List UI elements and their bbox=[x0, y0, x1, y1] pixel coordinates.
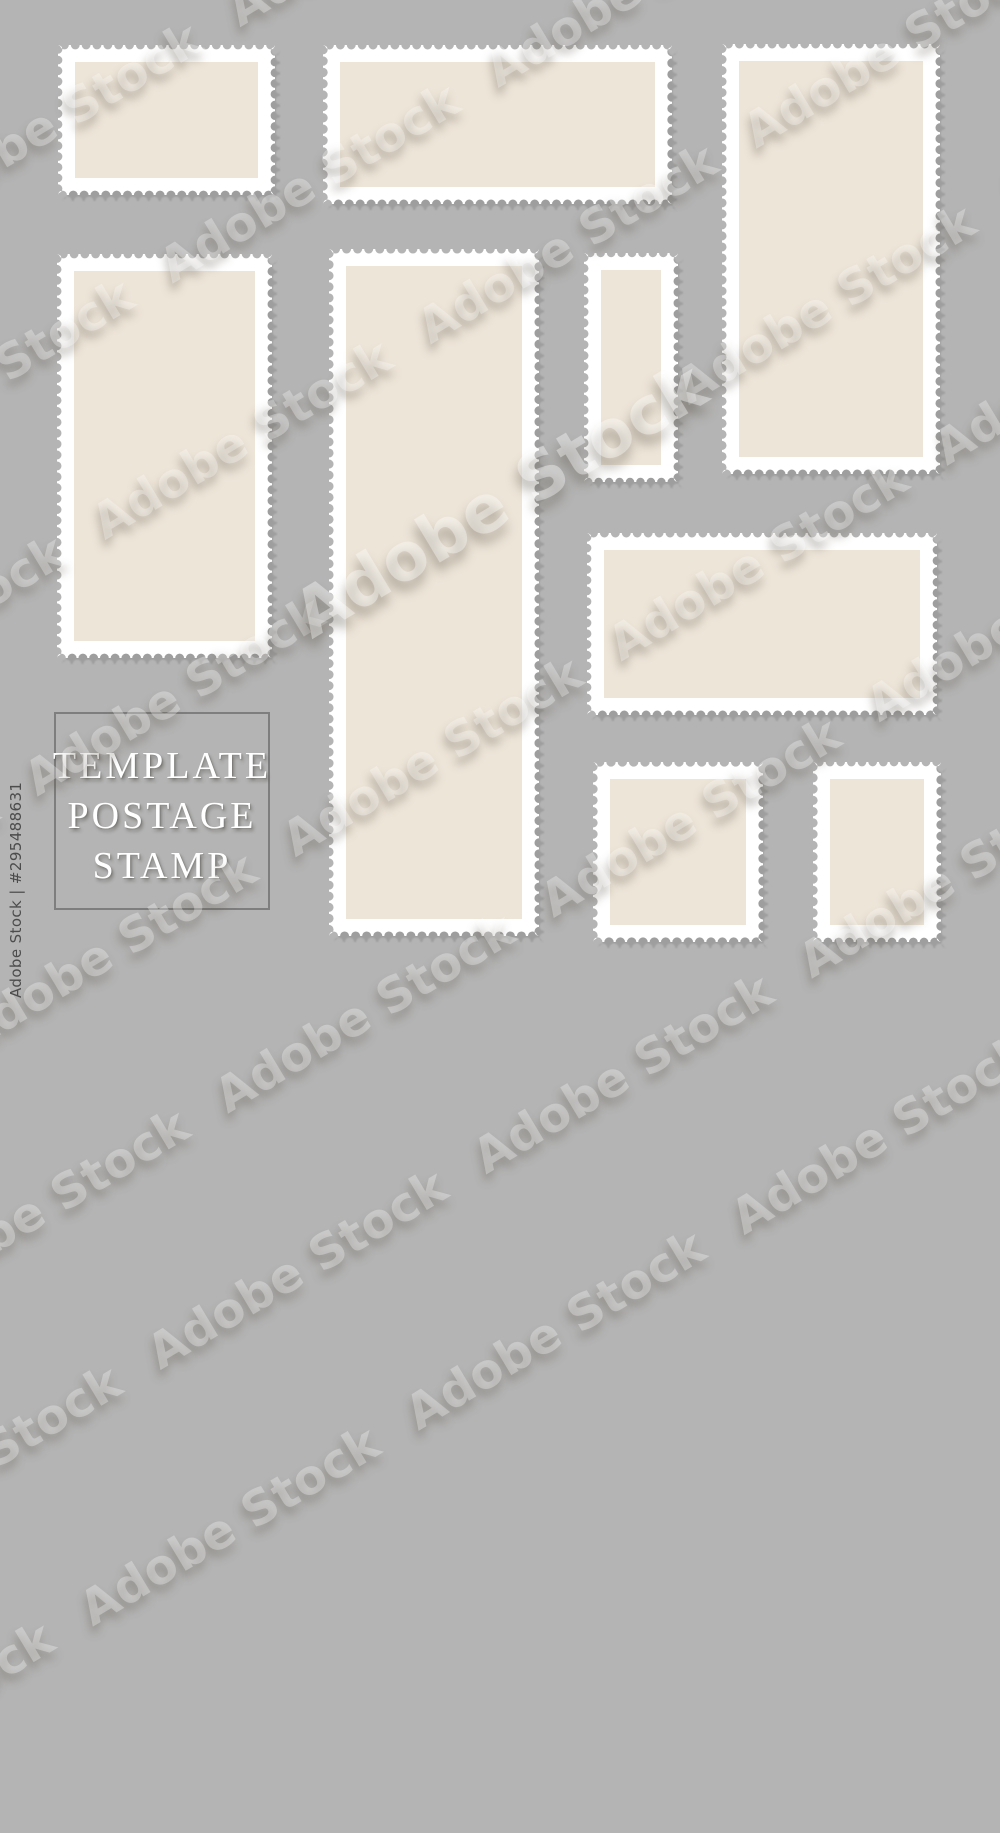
stamp-inner-blank bbox=[346, 266, 522, 919]
stamp-bottom-right-small bbox=[813, 762, 951, 952]
stamp-right-wide bbox=[587, 533, 947, 725]
stamp-bottom-square bbox=[593, 762, 773, 952]
watermark-text: Adobe Stock bbox=[217, 0, 536, 38]
stamp-top-right-tall bbox=[722, 44, 950, 484]
stamp-top-center-wide bbox=[323, 45, 682, 214]
stock-attribution: Adobe Stock | #295488631 bbox=[7, 750, 25, 998]
title-line-stamp: STAMP bbox=[93, 841, 232, 891]
title-line-postage: POSTAGE bbox=[68, 791, 257, 841]
watermark-text: Adobe Stock bbox=[138, 1158, 457, 1381]
watermark-text: Adobe Stock bbox=[0, 1354, 131, 1577]
stamp-inner-blank bbox=[610, 779, 746, 925]
watermark-text: Adobe Stock bbox=[721, 1023, 1000, 1246]
stamp-inner-blank bbox=[601, 270, 661, 465]
watermark-text: Adobe Stock bbox=[70, 1414, 389, 1637]
stamp-middle-small bbox=[584, 253, 688, 492]
stamp-sheet: TEMPLATE POSTAGE STAMP Adobe StockAdobe … bbox=[0, 0, 1000, 1000]
stamp-inner-blank bbox=[739, 61, 923, 457]
watermark-text: Adobe Stock bbox=[0, 1097, 199, 1320]
watermark-text: Adobe Stock bbox=[396, 1219, 715, 1442]
stamp-left-tall bbox=[57, 254, 282, 668]
stamp-top-left bbox=[58, 45, 285, 205]
watermark-text: Adobe Stock bbox=[463, 962, 782, 1185]
watermark-text: Adobe Stock bbox=[992, 0, 1000, 220]
stamp-inner-blank bbox=[604, 550, 920, 698]
stamp-inner-blank bbox=[830, 779, 924, 925]
stamp-inner-blank bbox=[74, 271, 255, 641]
stamp-inner-blank bbox=[340, 62, 655, 187]
watermark-text: Adobe Stock bbox=[0, 1610, 64, 1833]
title-frame: TEMPLATE POSTAGE STAMP bbox=[54, 712, 270, 910]
stamp-inner-blank bbox=[75, 62, 258, 178]
stamp-center-tall bbox=[329, 249, 549, 946]
title-line-template: TEMPLATE bbox=[53, 741, 271, 791]
